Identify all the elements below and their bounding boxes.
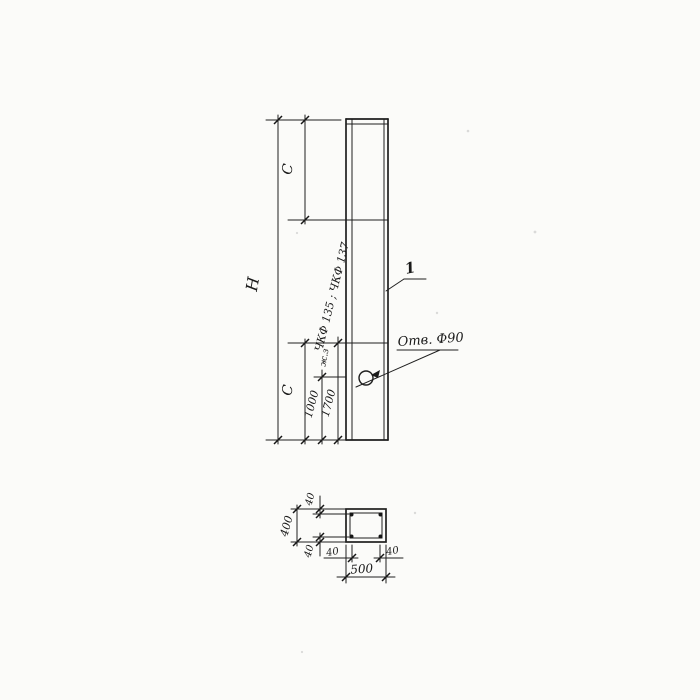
rebar-dot-icon [379, 535, 383, 539]
hole-callout-label: Отв. Ф90 [397, 330, 464, 350]
hole-leader-line [356, 350, 440, 387]
noise-speck [414, 512, 416, 514]
noise-speck [296, 232, 298, 234]
dim-label-400: 400 [277, 514, 295, 539]
section-view: 400 40 40 40 40 500 [277, 491, 403, 583]
hole-callout-group: Отв. Ф90 [356, 330, 464, 387]
rebar-dot-icon [379, 513, 383, 517]
drawing-canvas: Отв. Ф90 1 H C C 1000 1700 ж.з ЧКФ 135 ;… [0, 0, 700, 700]
dim-label-cover-left: 40 [324, 546, 340, 559]
noise-speck [301, 651, 303, 653]
part-ref-group: 1 [386, 258, 426, 291]
dim-label-cover-right: 40 [384, 545, 400, 558]
section-bottom-dims: 40 40 500 [324, 545, 403, 583]
dim-label-cover-top: 40 [303, 491, 317, 508]
dim-label-cover-bottom: 40 [302, 543, 316, 560]
part-number-label: 1 [403, 258, 417, 278]
noise-speck [436, 312, 438, 314]
dim-label-H: H [242, 274, 263, 293]
column-outline [346, 119, 388, 440]
section-inner-rect [350, 513, 382, 538]
elevation-view: Отв. Ф90 1 H C C 1000 1700 ж.з ЧКФ 135 ;… [242, 115, 464, 444]
dim-label-500: 500 [350, 561, 374, 577]
rebar-dot-icon [350, 513, 354, 517]
rebar-dot-icon [350, 535, 354, 539]
scanned-drawing-page: Отв. Ф90 1 H C C 1000 1700 ж.з ЧКФ 135 ;… [0, 0, 700, 700]
dim-label-c-top: C [279, 162, 297, 176]
section-outline [346, 509, 386, 542]
noise-speck [534, 231, 537, 234]
dim-label-c-bottom: C [279, 383, 297, 397]
noise-speck [467, 130, 470, 133]
